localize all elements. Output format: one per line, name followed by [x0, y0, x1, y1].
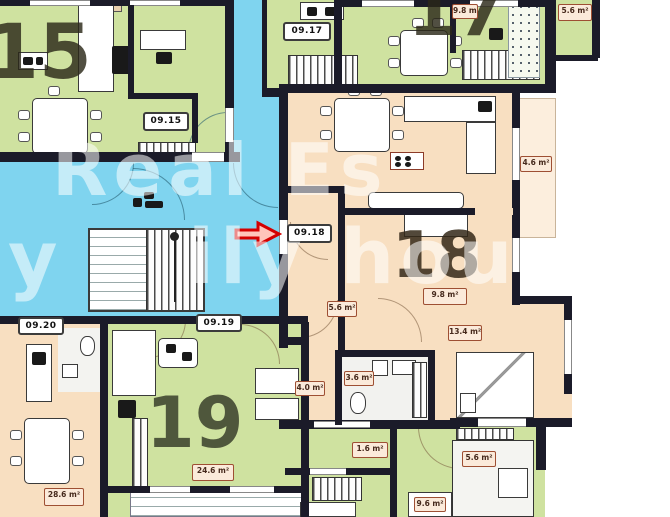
chair	[392, 130, 404, 140]
stair-landing	[90, 230, 146, 310]
washer-icon	[372, 360, 388, 376]
area-label: 28.6 m²	[44, 488, 84, 506]
wall	[262, 0, 267, 92]
window	[564, 320, 572, 374]
wall	[108, 486, 308, 493]
window	[130, 0, 180, 6]
red-arrow-icon	[234, 220, 282, 248]
dining-table	[334, 98, 390, 152]
area-label: 5.6 m²	[327, 301, 357, 317]
window	[512, 128, 520, 180]
stair-arrow-head	[170, 232, 179, 241]
window	[478, 418, 526, 427]
door-label-apt19: 09.19	[196, 314, 242, 332]
area-label: 24.6 m²	[192, 464, 234, 481]
area-label: 9.8 m²	[452, 4, 478, 19]
area-label: 9.6 m²	[414, 497, 446, 512]
unit-number-15: 15	[0, 14, 92, 90]
sofa	[368, 192, 464, 209]
wall	[192, 99, 198, 143]
chair-icon	[166, 344, 176, 353]
area-label: 4.6 m²	[520, 156, 552, 172]
shaft-hatch	[412, 362, 427, 418]
chair-icon	[182, 352, 192, 361]
chair	[450, 58, 462, 68]
wall	[334, 0, 342, 90]
closet	[255, 368, 299, 394]
door-label-apt18: 09.18	[287, 224, 332, 243]
area-label: 5.6 m²	[462, 451, 496, 467]
stove-icon	[32, 352, 46, 365]
toilet-icon	[350, 392, 366, 414]
shaft-hatch	[456, 428, 514, 440]
closet	[255, 398, 299, 420]
dining-table	[24, 418, 70, 484]
desk	[140, 30, 186, 50]
window	[30, 0, 90, 6]
unit-number-18: 18	[392, 224, 481, 288]
chair	[90, 132, 102, 142]
wall	[512, 296, 572, 304]
balcony-hatch	[508, 2, 540, 78]
area-label: 1.6 m²	[352, 442, 388, 458]
wall	[536, 418, 546, 470]
wall	[338, 186, 345, 350]
area-label: 4.0 m²	[295, 381, 325, 396]
door-opening	[225, 108, 234, 142]
wall	[279, 88, 288, 348]
area-label: 3.6 m²	[344, 371, 374, 386]
elevator-icon	[133, 192, 165, 208]
chair	[72, 456, 84, 466]
chair	[388, 36, 400, 46]
floor-plan: 15 17 18 19 09.17 09.15 09.18 09.19 09.2…	[0, 0, 670, 517]
stove-icon	[118, 400, 136, 418]
bed	[456, 352, 534, 418]
kitchen-table	[158, 338, 198, 368]
watermark-text: t	[628, 232, 667, 314]
chair	[388, 58, 400, 68]
dining-table	[32, 98, 88, 154]
window	[362, 0, 414, 7]
chair	[392, 106, 404, 116]
door-opening	[475, 208, 513, 215]
upper-stair-flight	[288, 55, 358, 87]
chair	[320, 130, 332, 140]
wardrobe	[312, 477, 362, 501]
wall	[512, 93, 520, 305]
wall	[428, 350, 435, 425]
kitchen-counter	[466, 122, 496, 174]
door-opening	[310, 468, 346, 475]
wall	[592, 0, 600, 58]
stove-icon	[390, 152, 424, 170]
chair	[72, 430, 84, 440]
area-label: 5.6 m²	[558, 4, 592, 21]
wall	[128, 93, 198, 99]
door-label-apt15: 09.15	[143, 112, 189, 131]
chair	[10, 456, 22, 466]
door-label-apt17: 09.17	[283, 22, 331, 41]
balcony-hatch	[130, 492, 308, 517]
door-opening	[192, 152, 224, 162]
wall	[545, 0, 556, 92]
wall	[285, 186, 343, 193]
shower-icon	[498, 468, 528, 498]
chair-icon	[156, 52, 172, 64]
door-label-apt20: 09.20	[18, 317, 64, 335]
window	[150, 486, 190, 493]
chair	[90, 110, 102, 120]
area-label: 9.8 m²	[423, 288, 467, 305]
window	[512, 238, 520, 272]
unit-number-19: 19	[146, 388, 243, 458]
wall	[279, 84, 556, 93]
door-opening	[314, 421, 370, 428]
chair	[18, 132, 30, 142]
area-label: 13.4 m²	[448, 325, 482, 341]
wall	[335, 350, 435, 357]
sink-icon	[478, 101, 492, 112]
staircase	[88, 228, 205, 312]
toilet-icon	[80, 336, 95, 356]
wall	[100, 316, 108, 517]
window	[230, 486, 274, 493]
stair-arrow	[174, 236, 176, 302]
sink-icon	[62, 364, 78, 378]
chair	[10, 430, 22, 440]
wall	[335, 350, 342, 425]
chair	[18, 110, 30, 120]
chair	[320, 106, 332, 116]
wall	[128, 5, 134, 95]
